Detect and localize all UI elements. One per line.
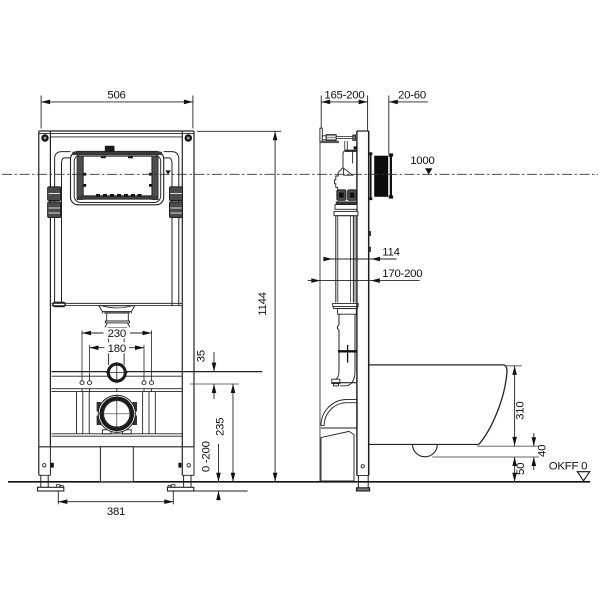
svg-text:381: 381 xyxy=(107,506,125,518)
svg-text:35: 35 xyxy=(195,350,207,362)
svg-text:1000: 1000 xyxy=(410,155,434,167)
svg-text:0 -200: 0 -200 xyxy=(201,441,213,472)
svg-text:310: 310 xyxy=(515,402,527,420)
svg-text:165-200: 165-200 xyxy=(324,89,364,101)
svg-text:230: 230 xyxy=(108,328,126,340)
svg-text:40: 40 xyxy=(537,445,549,457)
svg-text:180: 180 xyxy=(108,343,126,355)
svg-text:OKFF 0: OKFF 0 xyxy=(549,461,587,473)
svg-text:1144: 1144 xyxy=(257,292,269,316)
svg-text:170-200: 170-200 xyxy=(382,268,422,280)
svg-text:506: 506 xyxy=(107,89,125,101)
svg-text:235: 235 xyxy=(215,418,227,436)
svg-text:50: 50 xyxy=(515,463,527,475)
svg-text:114: 114 xyxy=(382,246,399,258)
svg-text:20-60: 20-60 xyxy=(398,89,426,101)
